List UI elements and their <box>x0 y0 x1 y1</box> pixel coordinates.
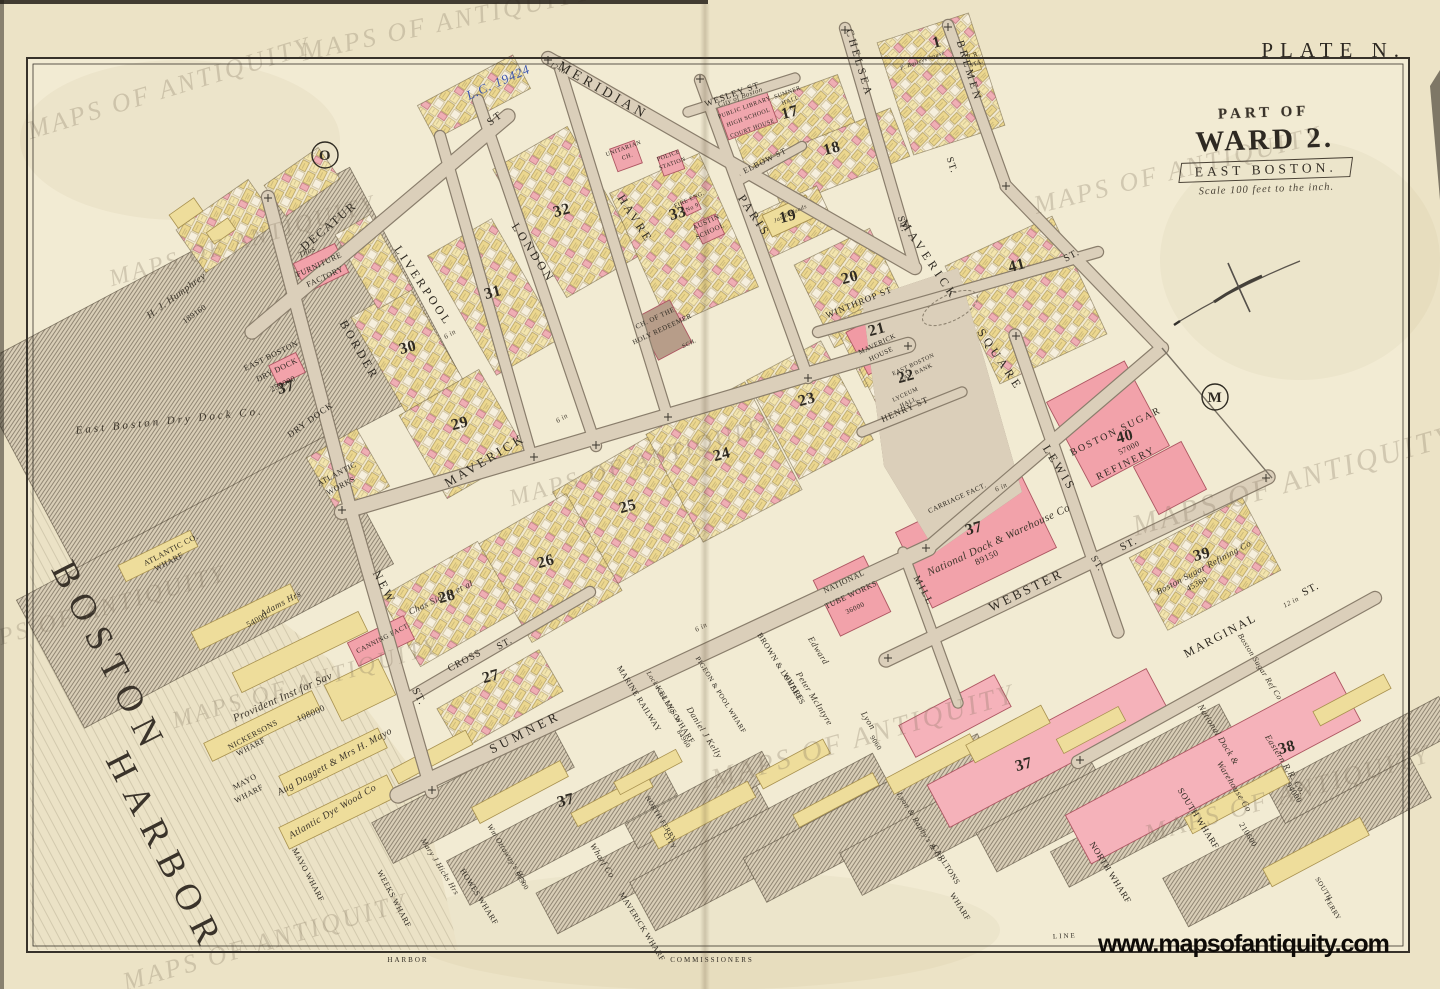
plate-label: PLATE N. <box>1261 38 1406 63</box>
cartouche-area-banner: EAST BOSTON. <box>1178 157 1353 183</box>
landmark-label: HARBOR <box>387 956 428 964</box>
reference-letter: M <box>1208 390 1223 406</box>
page-edge-top <box>0 0 708 4</box>
website-watermark: www.mapsofantiquity.com <box>1098 930 1389 959</box>
landmark-label: LINE <box>1053 931 1077 940</box>
reference-letter: O <box>319 148 331 164</box>
title-cartouche: PART OF WARD 2. EAST BOSTON. Scale 100 f… <box>1150 100 1379 199</box>
landmark-label: COMMISSIONERS <box>670 956 754 964</box>
atlas-plate-page: MERIDIANSTDECATURWESLEY STCHELSEAST.BREM… <box>0 0 1440 989</box>
cartouche-area: EAST BOSTON. <box>1194 160 1337 181</box>
cartouche-ward: WARD 2. <box>1151 120 1378 161</box>
cartouche-part-of: PART OF <box>1218 103 1310 123</box>
page-edge-left <box>0 0 4 989</box>
center-fold <box>700 4 710 989</box>
